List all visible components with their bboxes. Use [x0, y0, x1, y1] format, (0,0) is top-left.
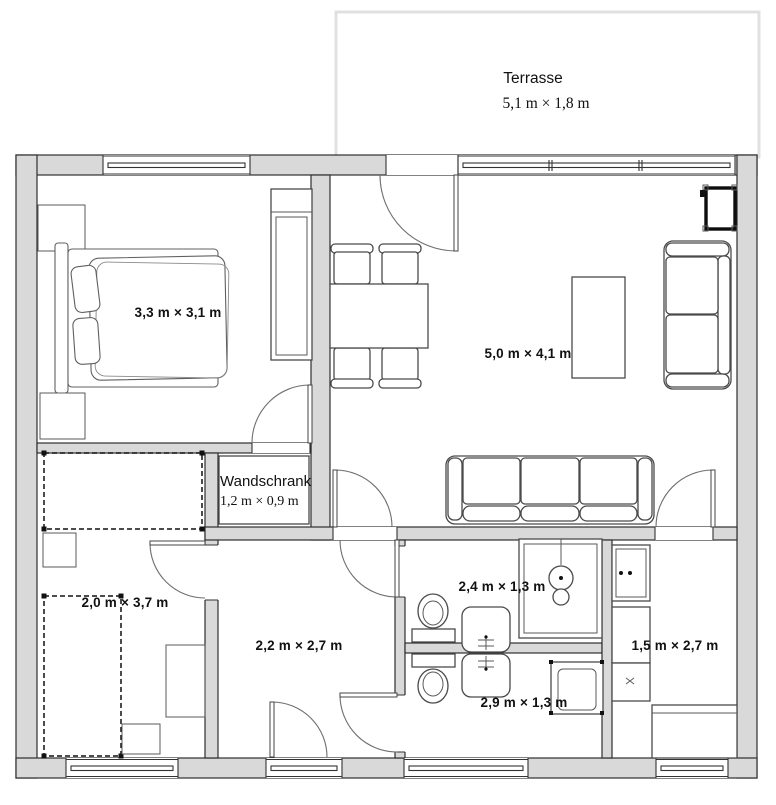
wall-left	[16, 155, 37, 778]
wandschrank-box	[219, 456, 309, 524]
chair	[382, 252, 418, 284]
wandschrank-label: Wandschrank	[220, 473, 312, 490]
pillow	[72, 317, 100, 365]
kitchen-door	[656, 470, 715, 527]
chair	[334, 348, 370, 380]
terrace-label: Terrasse	[503, 70, 562, 87]
bathroom-bottom: 2,9 m × 1,3 m	[412, 654, 604, 715]
terrace: Terrasse 5,1 m × 1,8 m	[336, 12, 759, 157]
living-dims-label: 5,0 m × 4,1 m	[484, 346, 571, 361]
wall-bath-kitchen	[602, 540, 612, 758]
living-room: 5,0 m × 4,1 m	[330, 185, 737, 524]
chair	[379, 379, 421, 388]
cabinet	[122, 724, 160, 754]
bathroom-top: 2,4 m × 1,3 m	[412, 539, 602, 652]
terrace-dims-label: 5,1 m × 1,8 m	[502, 95, 589, 112]
sink	[462, 654, 510, 697]
wall-right	[737, 155, 757, 778]
terrace-door	[380, 175, 458, 251]
kitchen-sink-unit	[612, 545, 650, 601]
wardrobe	[271, 189, 312, 360]
dining-table	[330, 284, 428, 348]
room-small: 2,0 m × 3,7 m	[42, 451, 206, 759]
pillow	[70, 265, 100, 314]
kitchen: 1,5 m × 2,7 m	[612, 545, 737, 758]
chair	[334, 252, 370, 284]
wandschrank: Wandschrank 1,2 m × 0,9 m	[219, 456, 312, 524]
sofa-right	[664, 241, 731, 389]
tv	[700, 185, 737, 231]
room-small-door	[150, 541, 205, 598]
sofa-bottom	[446, 456, 654, 524]
bedroom-door	[252, 385, 312, 443]
wall-inner-left	[205, 453, 218, 758]
hallway-dims-label: 2,2 m × 2,7 m	[255, 638, 342, 653]
bedroom-dims-label: 3,3 m × 3,1 m	[134, 305, 221, 320]
kitchen-counter	[612, 607, 650, 663]
chair	[382, 348, 418, 380]
toilet	[412, 594, 455, 642]
desk	[166, 645, 205, 717]
bedroom: 3,3 m × 3,1 m	[38, 189, 312, 439]
kitchen-counter-bottom	[652, 705, 737, 758]
bath2-dims-label: 2,9 m × 1,3 m	[480, 695, 567, 710]
bath-door	[340, 540, 399, 597]
kitchen-dims-label: 1,5 m × 2,7 m	[631, 638, 718, 653]
wandschrank-dims-label: 1,2 m × 0,9 m	[220, 494, 299, 509]
bath2-door	[340, 693, 397, 752]
nightstand	[40, 393, 85, 439]
room-small-dims-label: 2,0 m × 3,7 m	[81, 595, 168, 610]
sink	[462, 607, 510, 652]
hall-french-door	[270, 702, 327, 757]
planned-bed-dashed	[42, 594, 124, 759]
chair	[331, 379, 373, 388]
floor-plan: Terrasse 5,1 m × 1,8 m	[0, 0, 776, 800]
wall-bedroom-living	[311, 175, 330, 540]
sideboard	[572, 277, 625, 378]
bath-dims-label: 2,4 m × 1,3 m	[458, 579, 545, 594]
floor-plan-page: Terrasse 5,1 m × 1,8 m	[0, 0, 776, 800]
toilet	[412, 654, 455, 703]
dining-set	[330, 244, 428, 388]
planned-closet-dashed	[42, 451, 205, 532]
cabinet	[43, 533, 76, 567]
living-hall-door	[333, 470, 392, 527]
